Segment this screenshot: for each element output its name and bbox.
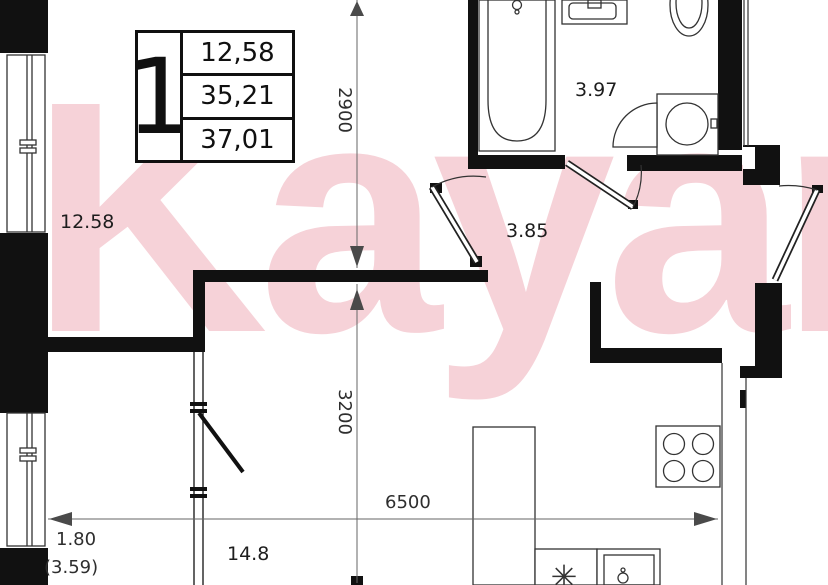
burner-star-icon: ✳ <box>551 558 578 585</box>
room-label-bathroom: 3.97 <box>575 79 617 101</box>
washing-machine-drum-icon <box>666 103 708 145</box>
wall-left-bottom <box>0 548 48 585</box>
arrow-right-icon <box>694 512 717 526</box>
room-count: 1 <box>138 33 183 160</box>
room-label-kitchen-living: 14.8 <box>227 543 269 565</box>
wall-bathroom-right <box>718 0 742 150</box>
arrow-up-icon <box>350 1 364 16</box>
sink-tap-icon <box>588 0 601 8</box>
wall-bedroom-bottom <box>193 270 488 282</box>
wall-tick-right <box>740 390 746 408</box>
apartment-info-box: 1 12,58 35,21 37,01 <box>135 30 295 163</box>
dim-label-balcony-width: 1.80 <box>56 529 96 550</box>
arrow-down-icon <box>350 246 364 267</box>
window-lower <box>7 413 45 546</box>
entry-door-arc <box>779 186 817 190</box>
area-row-living: 12,58 <box>183 33 292 76</box>
window-upper-mullion <box>20 140 36 145</box>
window-lower-mullion <box>20 448 36 453</box>
bathtub-faucet-icon <box>513 1 522 10</box>
wall-hall-bottom <box>590 348 722 363</box>
wall-left-top <box>0 0 48 53</box>
floorplan-page: Kayan <box>0 0 828 585</box>
entry-jamb-notch <box>743 147 755 169</box>
arrow-left-icon <box>49 512 72 526</box>
dim-label-6500: 6500 <box>385 492 431 513</box>
kitchen-fixtures: ✳ <box>473 426 720 585</box>
area-table: 12,58 35,21 37,01 <box>183 33 292 160</box>
dim-label-3200: 3200 <box>333 380 355 444</box>
balcony-door-leaf <box>199 413 243 472</box>
wall-right-lower <box>755 283 782 378</box>
arrow-up-icon <box>350 289 364 310</box>
area-row-total: 37,01 <box>183 120 292 160</box>
wall-left-mid <box>0 233 48 413</box>
bathroom-fixtures <box>479 0 718 155</box>
kitchen-counter <box>473 427 535 585</box>
shower-corner <box>613 103 657 147</box>
dim-label-balcony-area: (3.59) <box>44 557 98 578</box>
wall-bathroom-left <box>468 0 478 157</box>
room-label-bedroom: 12.58 <box>60 211 114 233</box>
wall-balcony-top <box>40 337 205 352</box>
dim-label-2900: 2900 <box>333 78 355 142</box>
area-row-usable: 35,21 <box>183 76 292 119</box>
wall-right-corner <box>740 366 782 378</box>
room-label-hallway: 3.85 <box>506 220 548 242</box>
wall-bathroom-bottom-left <box>468 155 565 169</box>
wall-hall-stub <box>590 282 601 352</box>
bathtub <box>479 0 555 151</box>
wall-bathroom-bottom-right <box>627 155 742 171</box>
